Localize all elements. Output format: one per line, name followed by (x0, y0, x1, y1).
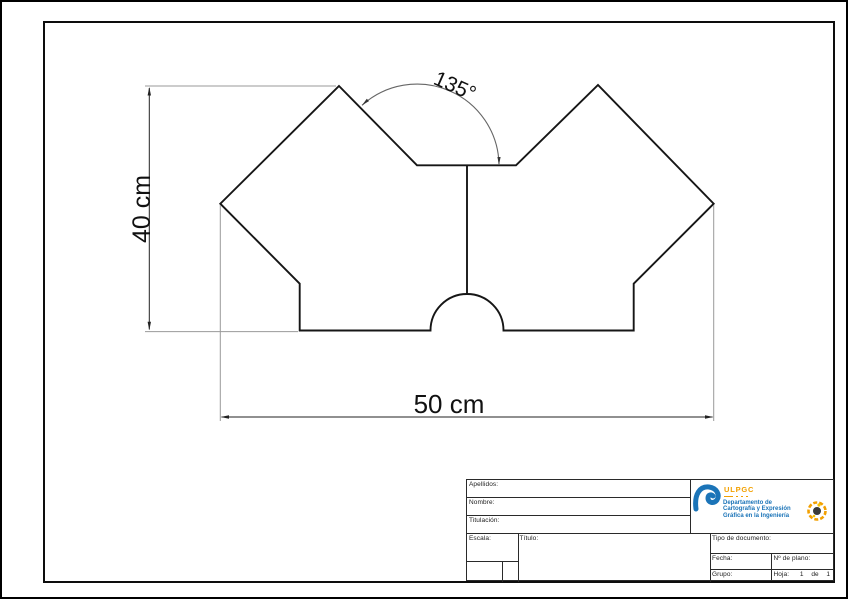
arrow-up-icon (148, 87, 151, 96)
divider (467, 497, 690, 498)
department-line: Cartografía y Expresión (723, 506, 791, 513)
ulpgc-acronym: ULPGC (724, 486, 754, 494)
department-line: Gráfica en la Ingeniería (723, 513, 791, 520)
divider (467, 561, 518, 562)
dim-angle-label: 135° (430, 67, 479, 106)
titulacion-field-label: Titulación: (469, 517, 499, 524)
grupo-field-label: Grupo: (712, 571, 732, 578)
ulpgc-logo-dashes (741, 496, 743, 498)
dimension-40cm: 40 cm (128, 87, 156, 330)
dim-width-label: 50 cm (414, 389, 485, 419)
fecha-field-label: Fecha: (712, 555, 732, 562)
arc-arrow-end-icon (497, 157, 500, 165)
drawing-sheet: 40 cm 50 cm 135° A3 (0, 0, 848, 599)
divider (771, 553, 772, 582)
ulpgc-logo-icon (692, 482, 722, 512)
ulpgc-logo-dashes (736, 496, 738, 498)
dimension-50cm: 50 cm (221, 389, 714, 419)
titulo-field-label: Título: (520, 535, 539, 542)
divider (502, 561, 503, 582)
escala-field-label: Escala: (469, 535, 491, 542)
divider (518, 533, 519, 582)
ulpgc-logo-dashes (724, 496, 733, 498)
hoja-value: 1 de 1 (787, 571, 830, 578)
dimension-135deg: 135° (362, 67, 501, 165)
extension-lines (145, 86, 714, 421)
num-plano-field-label: Nº de plano: (774, 555, 811, 562)
arrow-down-icon (148, 322, 151, 331)
title-block: Apellidos: Nombre: Titulación: Escala: T… (466, 479, 834, 581)
arrow-right-icon (705, 415, 713, 418)
arrow-left-icon (221, 415, 229, 418)
department-line: Departamento de (723, 500, 791, 507)
divider (710, 533, 711, 582)
divider (467, 533, 833, 534)
tipo-documento-field-label: Tipo de documento: (712, 535, 771, 542)
ulpgc-logo-dashes (746, 496, 748, 498)
department-name: Departamento de Cartografía y Expresión … (723, 500, 791, 520)
dim-height-label: 40 cm (128, 175, 156, 243)
nombre-field-label: Nombre: (469, 499, 495, 506)
department-emblem-icon (805, 497, 829, 525)
divider (467, 515, 690, 516)
divider (690, 480, 691, 534)
apellidos-field-label: Apellidos: (469, 481, 498, 488)
